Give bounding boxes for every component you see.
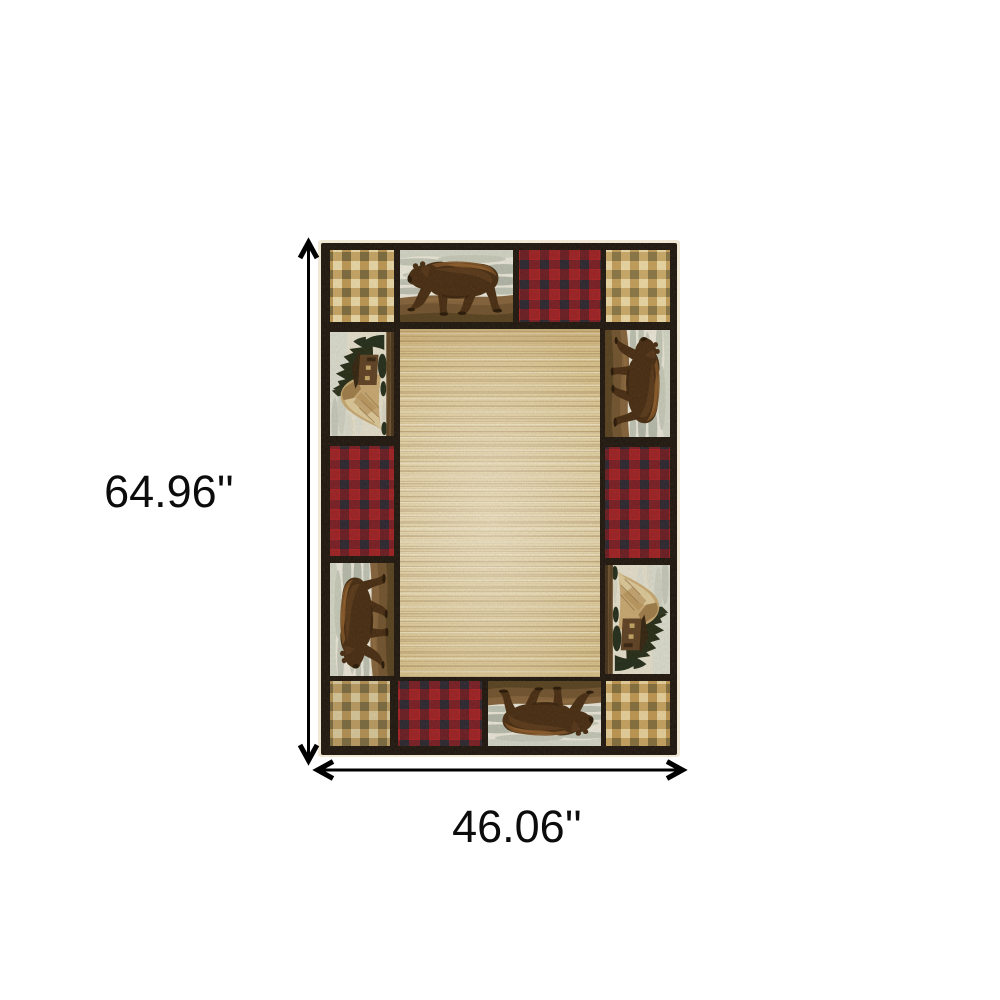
svg-text:64.96'': 64.96'' <box>104 466 234 517</box>
svg-text:46.06'': 46.06'' <box>452 801 582 852</box>
